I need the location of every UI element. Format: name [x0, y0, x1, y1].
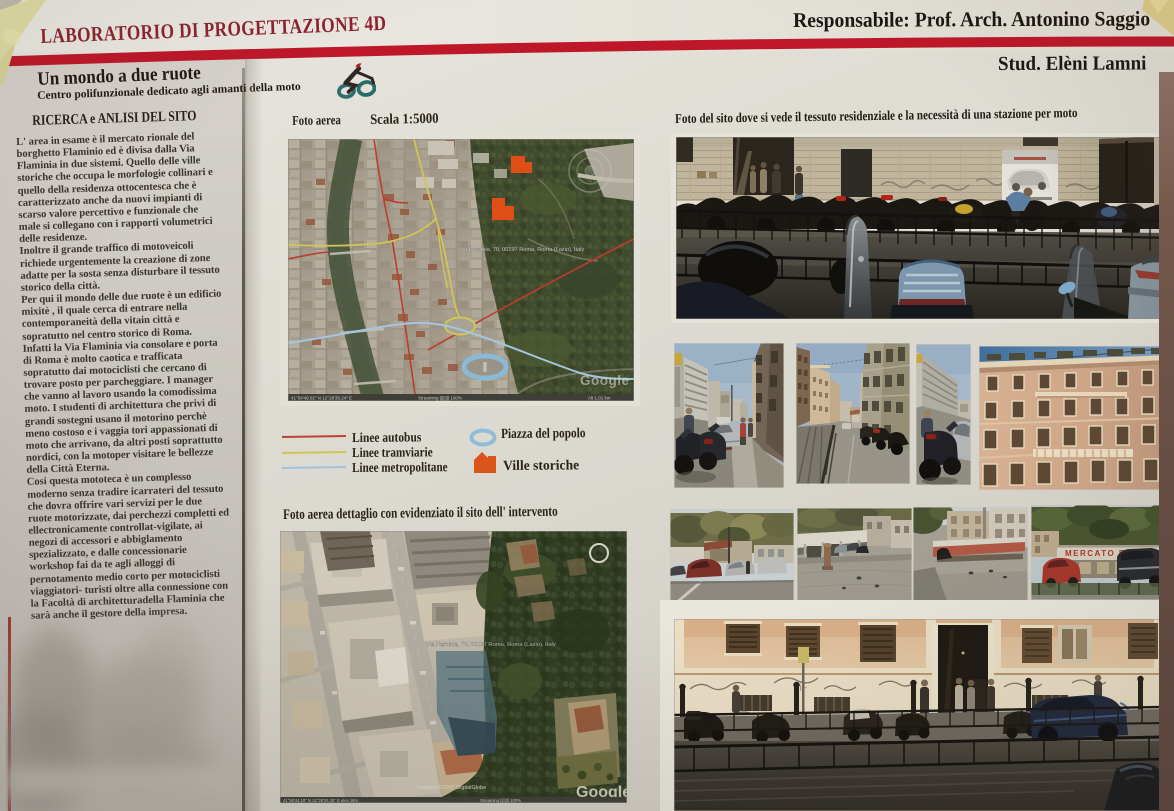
svg-text:Via Flaminia, 70, 00197 Roma,: Via Flaminia, 70, 00197 Roma, Roma (Lazi…	[459, 247, 584, 253]
svg-text:Streaming |||||||| 100%: Streaming |||||||| 100%	[418, 396, 462, 401]
svg-text:Imagery ©2007 DigitalGlobe: Imagery ©2007 DigitalGlobe	[417, 784, 486, 791]
svg-text:Alt 1.01 km: Alt 1.01 km	[588, 396, 611, 401]
svg-text:Streaming |||||||| 100%: Streaming |||||||| 100%	[480, 798, 521, 803]
svg-text:Google: Google	[580, 373, 630, 388]
svg-text:41°54'49.02" N 12°28'36.24" E: 41°54'49.02" N 12°28'36.24" E	[291, 396, 352, 401]
svg-text:Via Flaminia, 70, 00197 Roma,: Via Flaminia, 70, 00197 Roma, Roma (Lazi…	[426, 642, 556, 648]
svg-text:41°55'44.18" N 12°28'24.25": 41°55'44.18" N 12°28'24.25" E elev 18m	[283, 798, 358, 803]
